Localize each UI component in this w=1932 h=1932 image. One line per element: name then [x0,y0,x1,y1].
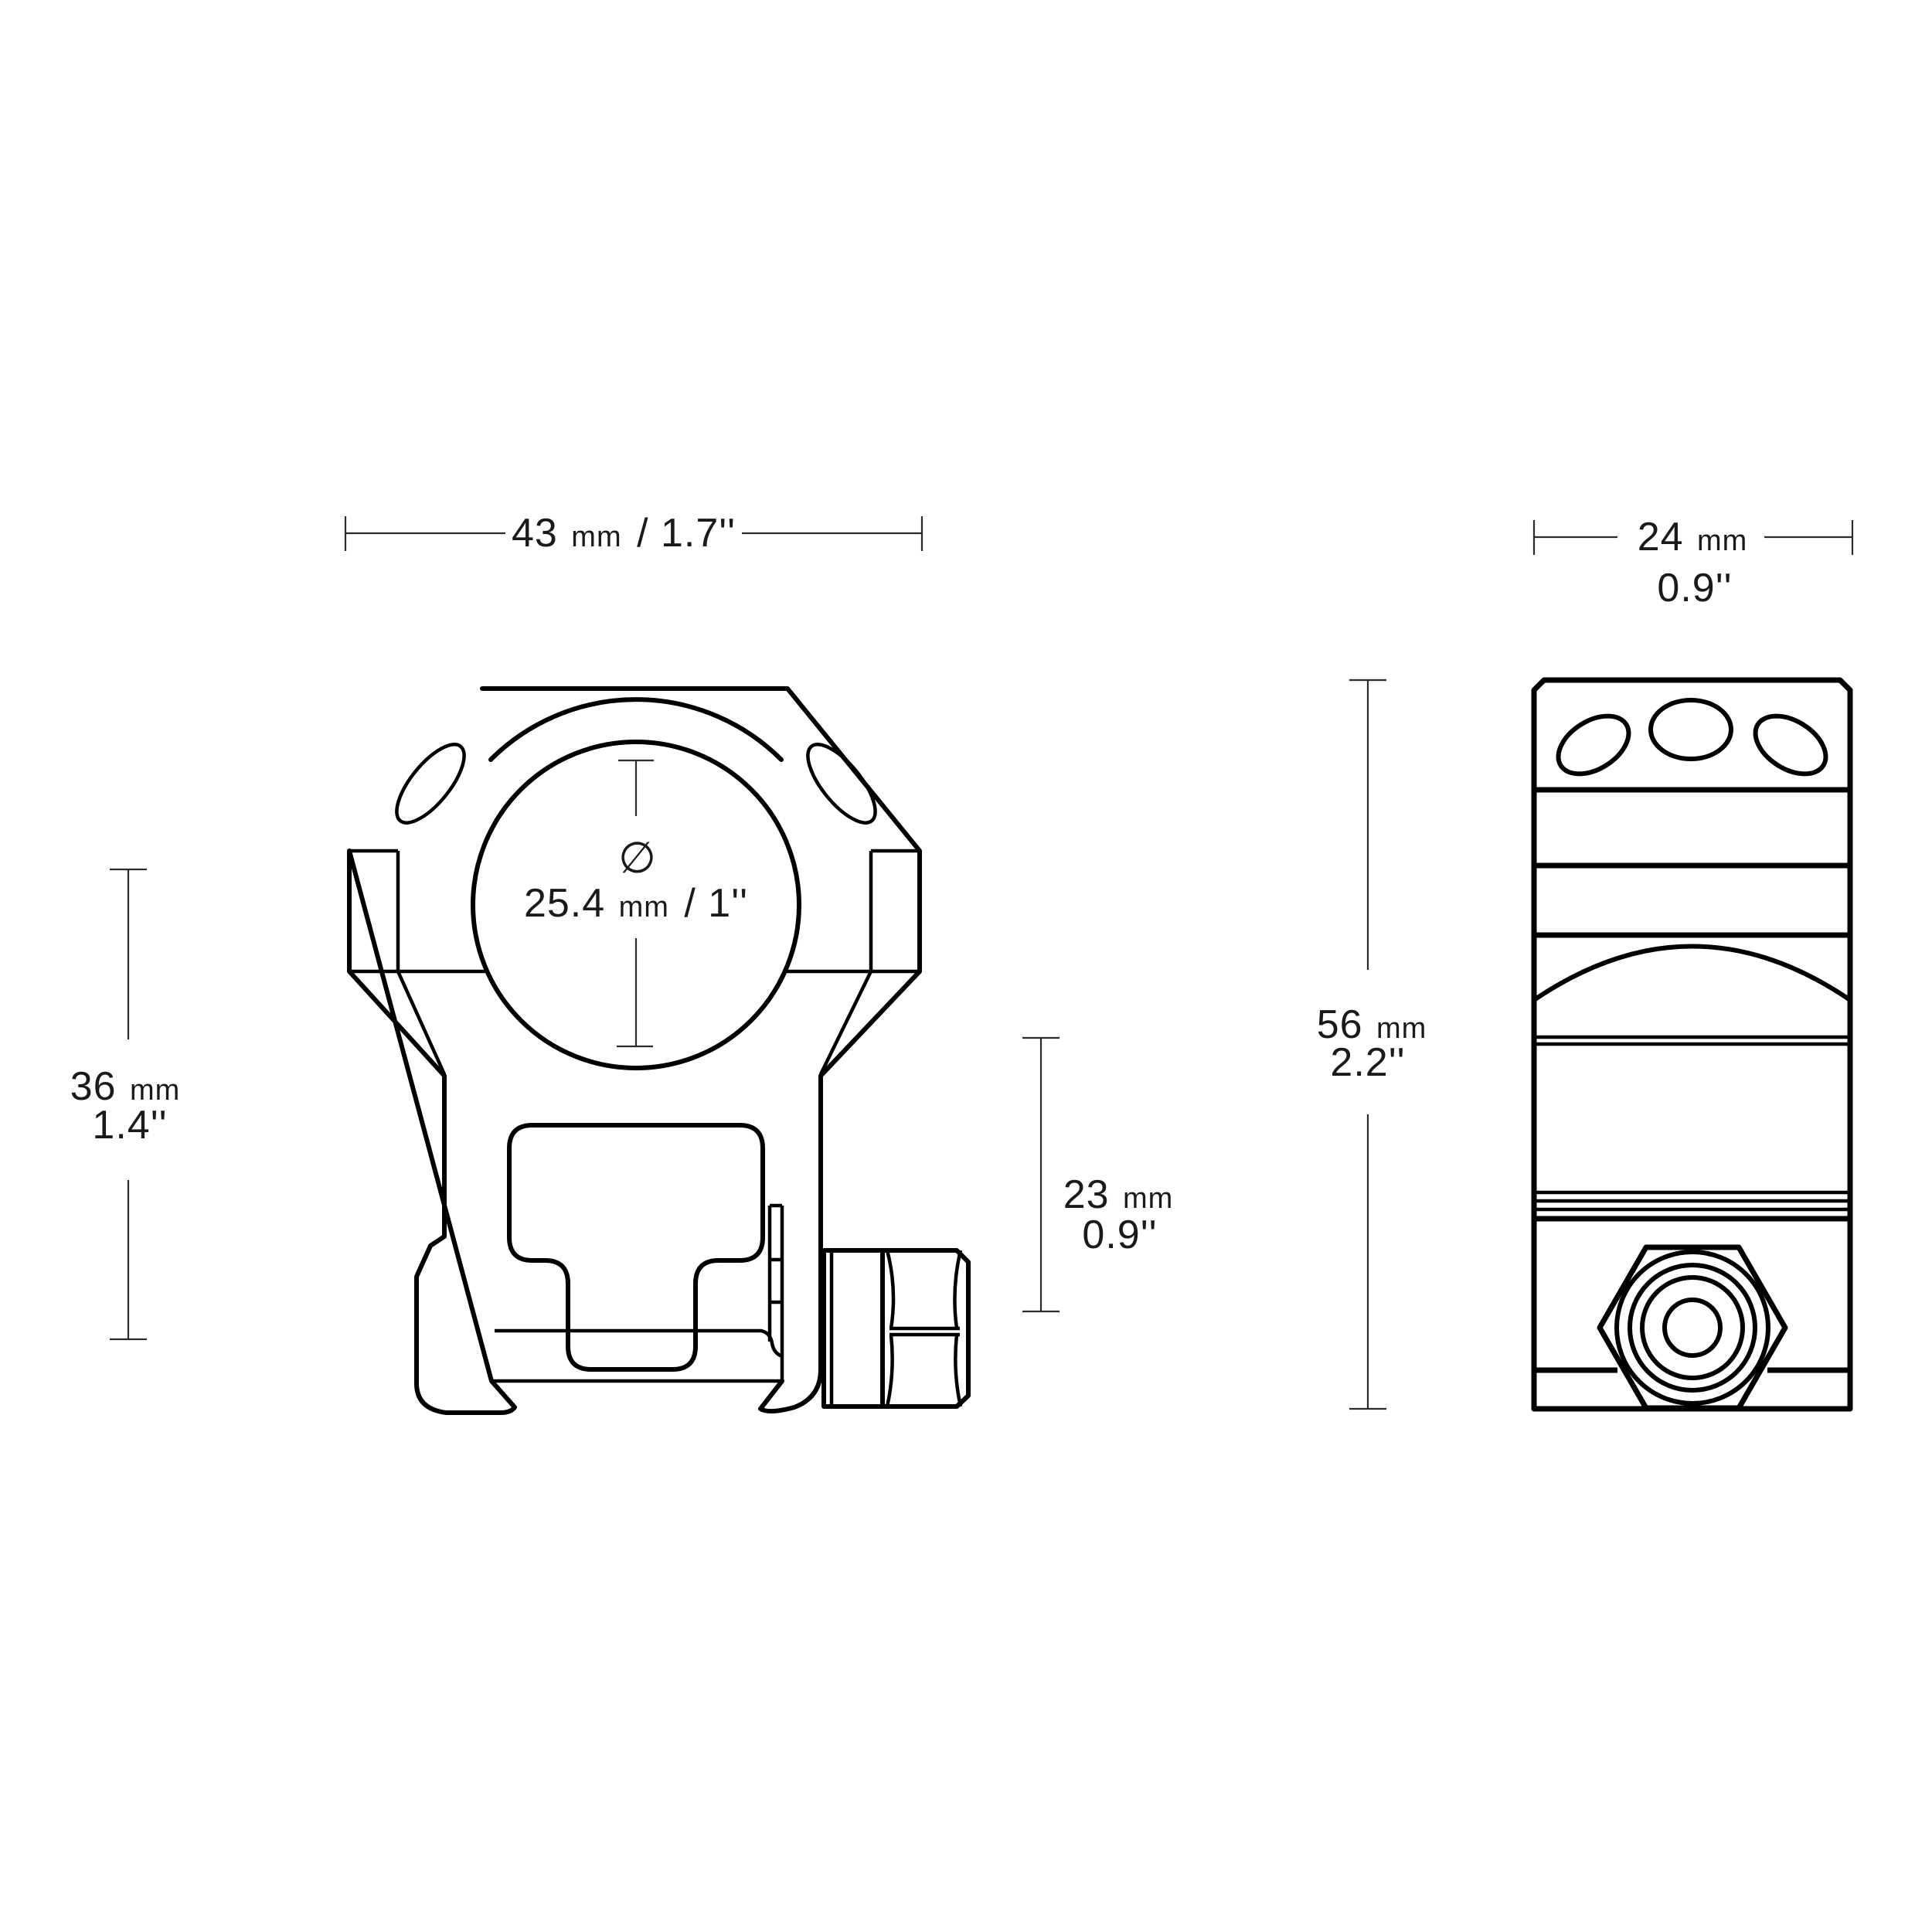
dim-side-height-label-in: 2.2'' [1330,1040,1405,1085]
front-cap-arc [491,699,781,760]
dim-front-width-line [345,516,922,551]
dim-front-height-label-in: 1.4'' [92,1103,167,1148]
dim-base-height: 23 mm 0.9'' [1022,1038,1173,1311]
bolt-hex-mid-lines [889,1328,960,1335]
nut-circle-4 [1665,1300,1720,1355]
front-view-drawing [349,689,968,1413]
front-left-facet-lines [349,851,444,1074]
dim-side-width-line [1534,520,1852,555]
dim-base-height-line [1022,1038,1060,1311]
dim-tube-diameter-label: 25.4 mm / 1'' [524,881,748,926]
side-screw-hole-middle [1651,700,1731,759]
front-rail-slot-top [495,1331,782,1356]
front-screw-hole-right [797,734,887,833]
nut-circle-3 [1642,1277,1743,1378]
clamp-bolt [824,1250,968,1406]
dim-base-height-label-in: 0.9'' [1082,1213,1157,1257]
dim-side-width-label-mm: 24 mm [1638,515,1748,560]
dim-front-width: 43 mm / 1.7'' [345,511,922,556]
dim-front-width-label: 43 mm / 1.7'' [512,511,736,556]
front-right-facet-lines [821,851,920,1074]
nut-circle-2 [1630,1265,1755,1390]
side-screw-hole-right [1745,704,1836,786]
side-saddle-arc [1534,947,1850,1001]
side-screw-hole-left [1548,704,1639,786]
dim-side-width: 24 mm 0.9'' [1534,515,1852,611]
dim-side-height: 56 mm 2.2'' [1317,680,1427,1409]
side-rail-lines [1534,1192,1850,1209]
technical-drawing: 43 mm / 1.7'' ∅ 25.4 mm / 1'' 36 mm 1.4'… [0,0,1932,1932]
dim-tube-diameter: ∅ 25.4 mm / 1'' [524,760,748,1046]
diagram-page: 43 mm / 1.7'' ∅ 25.4 mm / 1'' 36 mm 1.4'… [0,0,1932,1932]
dim-side-width-label-in: 0.9'' [1657,566,1732,611]
nut-circle-1 [1617,1252,1768,1403]
dim-base-height-label-mm: 23 mm [1063,1172,1174,1217]
side-view-drawing [1534,680,1850,1409]
front-t-cutout [509,1125,763,1369]
dim-front-height: 36 mm 1.4'' [70,869,181,1339]
clamp-nut-front [1600,1247,1785,1408]
diameter-symbol: ∅ [618,833,657,883]
front-screw-hole-left [386,734,476,833]
side-split-line-double [1534,1037,1850,1044]
